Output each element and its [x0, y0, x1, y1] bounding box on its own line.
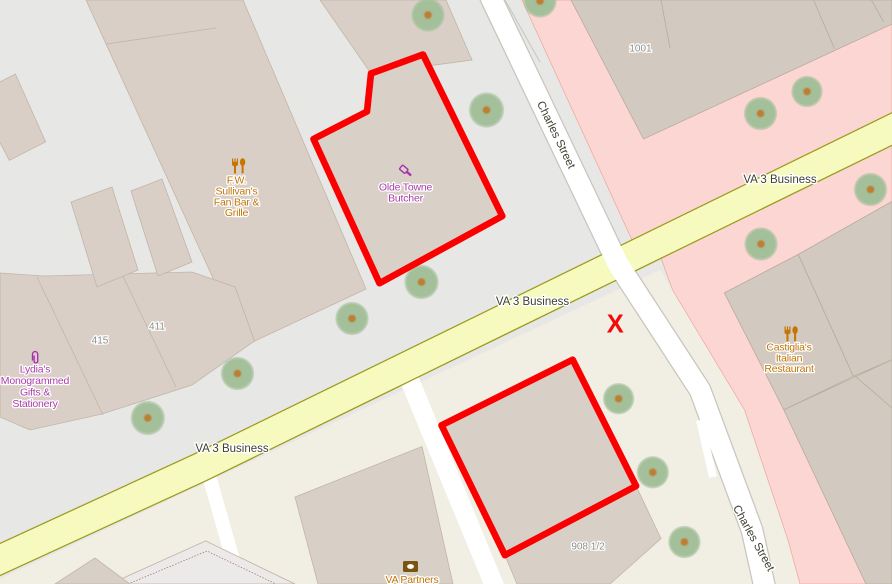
svg-text:VA 3 Business: VA 3 Business: [195, 443, 269, 455]
svg-text:908 1/2: 908 1/2: [571, 542, 605, 553]
svg-text:1001: 1001: [629, 44, 652, 55]
svg-text:Grille: Grille: [225, 207, 249, 219]
svg-text:411: 411: [149, 322, 165, 333]
svg-text:Butcher: Butcher: [388, 192, 423, 204]
svg-text:Lydia's: Lydia's: [20, 364, 51, 376]
svg-text:415: 415: [92, 336, 109, 347]
svg-text:VA Partners: VA Partners: [385, 574, 438, 584]
svg-text:VA 3 Business: VA 3 Business: [496, 296, 570, 308]
svg-text:VA 3 Business: VA 3 Business: [743, 174, 817, 186]
svg-text:Stationery: Stationery: [12, 398, 58, 410]
svg-text:Monogrammed: Monogrammed: [1, 375, 70, 387]
svg-text:Restaurant: Restaurant: [764, 363, 814, 375]
svg-text:X: X: [607, 310, 624, 338]
svg-text:Gifts &: Gifts &: [20, 387, 50, 399]
